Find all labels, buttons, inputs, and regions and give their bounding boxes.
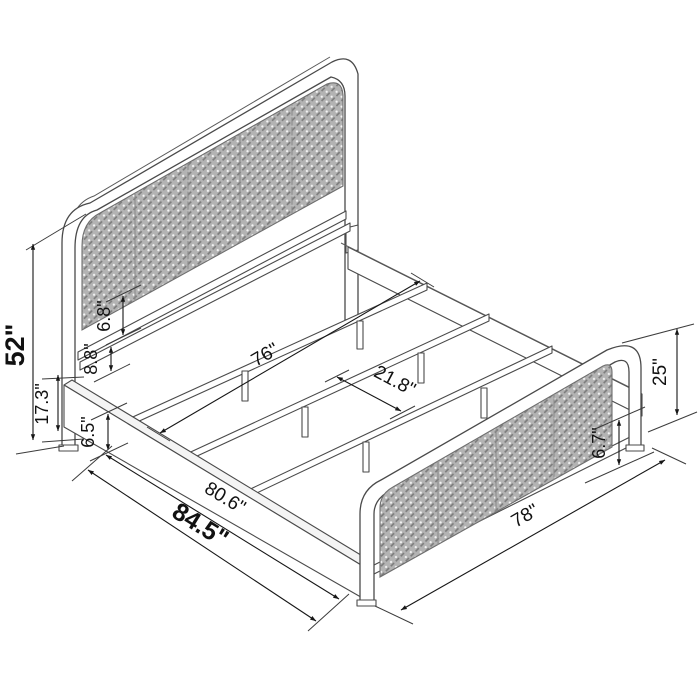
dim-side-rail-height-label: 6.5" [78,416,98,447]
slat-leg [242,371,248,401]
slat-leg [357,321,363,349]
dim-headboard-panel-gap-label: 6.8" [94,300,114,331]
footboard-right-foot [626,445,644,451]
headboard-cane-panel [82,83,343,330]
slat-2 [182,314,489,463]
slat-leg [302,407,308,437]
dim-footboard-clearance-label: 6.7" [589,427,609,458]
headboard [59,57,358,451]
slat-leg [481,388,487,418]
footboard-left-foot [357,600,376,606]
slat-leg [363,442,369,472]
dim-slat-spacing-label: 21.8" [370,362,418,401]
dim-headboard-bar-gap-label: 8.8" [81,343,101,374]
slat-leg [418,353,424,383]
dim-footboard-height-label: 25" [650,358,671,386]
dim-floor-to-rail-label: 17.3" [32,383,52,424]
bed-frame-dimension-diagram: 52" 17.3" 6.8" 8.8" 6.5" [0,0,700,700]
diagram-canvas: 52" 17.3" 6.8" 8.8" 6.5" [0,0,700,700]
dim-headboard-total-height-label: 52" [0,324,30,367]
